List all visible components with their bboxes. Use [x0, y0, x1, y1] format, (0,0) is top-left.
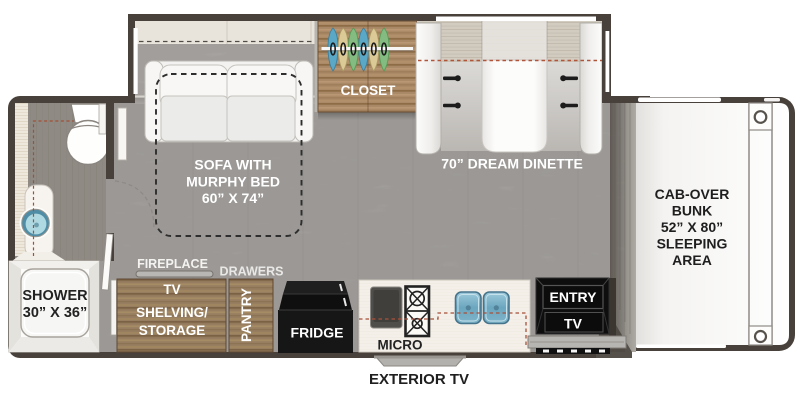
svg-text:EXTERIOR TV: EXTERIOR TV	[369, 371, 469, 388]
svg-text:30” X 36”: 30” X 36”	[23, 305, 88, 321]
svg-text:PANTRY: PANTRY	[239, 288, 254, 342]
svg-text:STORAGE: STORAGE	[139, 323, 206, 338]
svg-text:DRAWERS: DRAWERS	[220, 265, 284, 279]
svg-text:TV: TV	[564, 316, 583, 332]
svg-text:BUNK: BUNK	[672, 203, 712, 219]
svg-text:SHELVING/: SHELVING/	[136, 305, 208, 320]
svg-text:CAB-OVER: CAB-OVER	[655, 186, 730, 202]
svg-text:ENTRY: ENTRY	[550, 289, 598, 305]
svg-text:MICRO: MICRO	[378, 338, 423, 353]
svg-text:52” X 80”: 52” X 80”	[661, 219, 723, 235]
svg-text:CLOSET: CLOSET	[341, 83, 397, 98]
svg-text:TV: TV	[163, 282, 180, 297]
svg-text:70” DREAM DINETTE: 70” DREAM DINETTE	[441, 156, 583, 172]
svg-text:MURPHY BED: MURPHY BED	[186, 174, 280, 190]
svg-text:SLEEPING: SLEEPING	[657, 236, 728, 252]
svg-text:FIREPLACE: FIREPLACE	[137, 257, 208, 271]
svg-text:FRIDGE: FRIDGE	[291, 325, 344, 341]
svg-text:SHOWER: SHOWER	[22, 288, 88, 304]
svg-text:60” X 74”: 60” X 74”	[202, 190, 264, 206]
svg-text:SOFA WITH: SOFA WITH	[194, 157, 271, 173]
svg-text:AREA: AREA	[672, 252, 712, 268]
